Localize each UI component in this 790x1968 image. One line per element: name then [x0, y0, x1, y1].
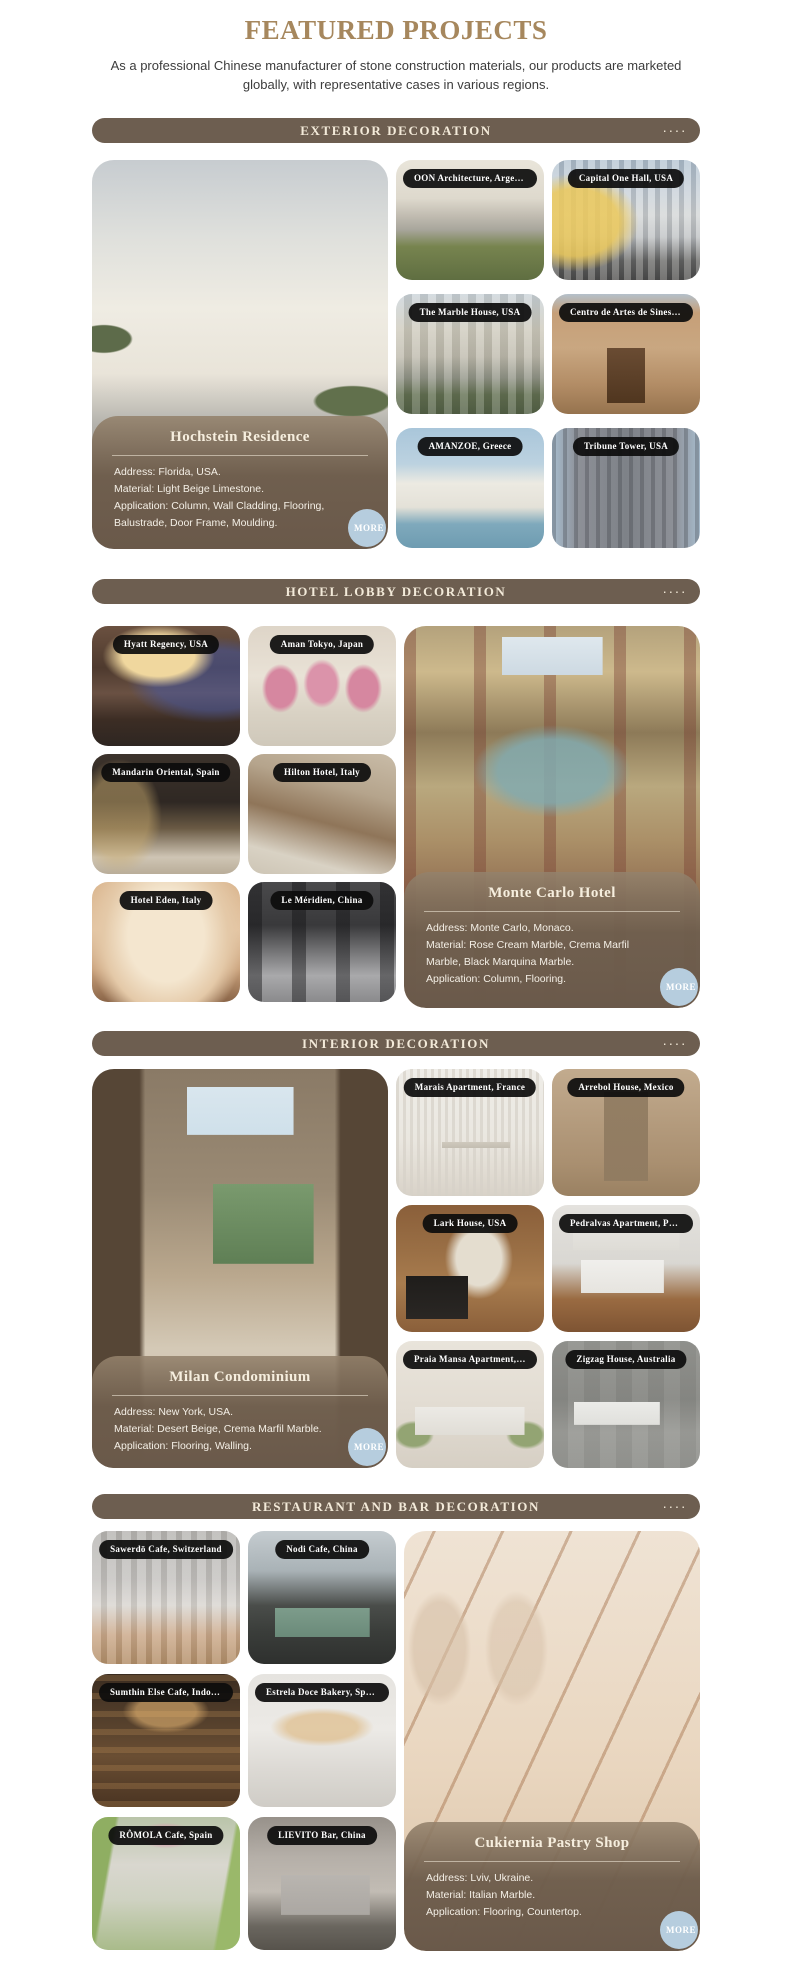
project-card[interactable]: LIEVITO Bar, China — [248, 1817, 396, 1950]
section-restaurant-bar: RESTAURANT AND BAR DECORATION ···· Sawer… — [92, 1494, 700, 1951]
divider — [424, 911, 680, 912]
project-label: Zigzag House, Australia — [565, 1350, 686, 1369]
section-body: Hyatt Regency, USA Aman Tokyo, Japan Man… — [92, 626, 700, 1008]
project-grid: Marais Apartment, France Arrebol House, … — [396, 1069, 700, 1468]
project-label: Hyatt Regency, USA — [113, 635, 219, 654]
section-title: HOTEL LOBBY DECORATION — [286, 584, 507, 600]
project-label: Pedralvas Apartment, Portugal — [559, 1214, 693, 1233]
project-card[interactable]: Hilton Hotel, Italy — [248, 754, 396, 874]
detail-address: Address: Monte Carlo, Monaco. — [426, 920, 686, 937]
project-card[interactable]: Praia Mansa Apartment, Brazil — [396, 1341, 544, 1468]
project-label: Praia Mansa Apartment, Brazil — [403, 1350, 537, 1369]
project-label: The Marble House, USA — [409, 303, 532, 322]
section-header-hotel: HOTEL LOBBY DECORATION ···· — [92, 579, 700, 604]
section-title: RESTAURANT AND BAR DECORATION — [252, 1499, 540, 1515]
project-card[interactable]: Sumthin Else Cafe, Indonesia — [92, 1674, 240, 1807]
featured-project-card[interactable]: Monte Carlo Hotel Address: Monte Carlo, … — [404, 626, 700, 1008]
detail-material-2: Marble, Black Marquina Marble. — [426, 954, 686, 971]
project-card[interactable]: Aman Tokyo, Japan — [248, 626, 396, 746]
project-label: Centro de Artes de Sines, Portugal — [559, 303, 693, 322]
project-card[interactable]: Sawerdō Cafe, Switzerland — [92, 1531, 240, 1664]
project-card[interactable]: Hyatt Regency, USA — [92, 626, 240, 746]
section-body: Milan Condominium Address: New York, USA… — [92, 1069, 700, 1468]
project-card[interactable]: OON Architecture, Argentina — [396, 160, 544, 280]
detail-material: Material: Rose Cream Marble, Crema Marfi… — [426, 937, 686, 954]
project-label: AMANZOE, Greece — [418, 437, 523, 456]
page-content: FEATURED PROJECTS As a professional Chin… — [92, 14, 700, 1951]
divider — [112, 1395, 368, 1396]
project-grid: Hyatt Regency, USA Aman Tokyo, Japan Man… — [92, 626, 396, 1002]
section-header-exterior: EXTERIOR DECORATION ···· — [92, 118, 700, 143]
project-card[interactable]: Capital One Hall, USA — [552, 160, 700, 280]
featured-info-panel: Hochstein Residence Address: Florida, US… — [92, 416, 388, 549]
featured-details: Address: Lviv, Ukraine. Material: Italia… — [404, 1870, 700, 1921]
project-grid: Sawerdō Cafe, Switzerland Nodi Cafe, Chi… — [92, 1531, 396, 1950]
project-card[interactable]: Estrela Doce Bakery, Spain — [248, 1674, 396, 1807]
project-label: Hotel Eden, Italy — [120, 891, 213, 910]
project-label: OON Architecture, Argentina — [403, 169, 537, 188]
project-card[interactable]: Nodi Cafe, China — [248, 1531, 396, 1664]
detail-application: Application: Column, Flooring. — [426, 971, 686, 988]
project-card[interactable]: Marais Apartment, France — [396, 1069, 544, 1196]
project-label: Mandarin Oriental, Spain — [101, 763, 230, 782]
project-label: Le Méridien, China — [270, 891, 373, 910]
section-exterior: EXTERIOR DECORATION ···· Hochstein Resid… — [92, 118, 700, 549]
project-label: Sumthin Else Cafe, Indonesia — [99, 1683, 233, 1702]
detail-application: Application: Column, Wall Cladding, Floo… — [114, 498, 374, 515]
section-body: Hochstein Residence Address: Florida, US… — [92, 160, 700, 549]
detail-address: Address: New York, USA. — [114, 1404, 374, 1421]
project-card[interactable]: Lark House, USA — [396, 1205, 544, 1332]
project-label: Capital One Hall, USA — [568, 169, 684, 188]
featured-info-panel: Milan Condominium Address: New York, USA… — [92, 1356, 388, 1468]
divider — [424, 1861, 680, 1862]
project-card[interactable]: RÔMOLA Cafe, Spain — [92, 1817, 240, 1950]
project-label: LIEVITO Bar, China — [267, 1826, 377, 1845]
detail-application: Application: Flooring, Countertop. — [426, 1904, 686, 1921]
project-card[interactable]: Mandarin Oriental, Spain — [92, 754, 240, 874]
ellipsis-icon[interactable]: ···· — [662, 1036, 687, 1050]
project-label: Nodi Cafe, China — [275, 1540, 369, 1559]
project-grid: OON Architecture, Argentina Capital One … — [396, 160, 700, 548]
project-label: Hilton Hotel, Italy — [273, 763, 371, 782]
featured-project-title: Hochstein Residence — [92, 416, 388, 446]
section-hotel-lobby: HOTEL LOBBY DECORATION ···· Hyatt Regenc… — [92, 579, 700, 1008]
featured-project-title: Monte Carlo Hotel — [404, 872, 700, 902]
detail-application: Application: Flooring, Walling. — [114, 1438, 374, 1455]
ellipsis-icon[interactable]: ···· — [662, 1499, 687, 1513]
project-label: Arrebol House, Mexico — [567, 1078, 684, 1097]
detail-material: Material: Light Beige Limestone. — [114, 481, 374, 498]
project-card[interactable]: Arrebol House, Mexico — [552, 1069, 700, 1196]
featured-details: Address: Monte Carlo, Monaco. Material: … — [404, 920, 700, 988]
featured-project-card[interactable]: Hochstein Residence Address: Florida, US… — [92, 160, 388, 549]
featured-details: Address: New York, USA. Material: Desert… — [92, 1404, 388, 1455]
ellipsis-icon[interactable]: ···· — [662, 584, 687, 598]
project-label: RÔMOLA Cafe, Spain — [108, 1826, 223, 1845]
project-card[interactable]: Pedralvas Apartment, Portugal — [552, 1205, 700, 1332]
project-card[interactable]: AMANZOE, Greece — [396, 428, 544, 548]
featured-info-panel: Cukiernia Pastry Shop Address: Lviv, Ukr… — [404, 1822, 700, 1951]
page-subtitle: As a professional Chinese manufacturer o… — [102, 56, 690, 94]
detail-application-2: Balustrade, Door Frame, Moulding. — [114, 515, 374, 532]
section-body: Sawerdō Cafe, Switzerland Nodi Cafe, Chi… — [92, 1531, 700, 1951]
detail-address: Address: Lviv, Ukraine. — [426, 1870, 686, 1887]
project-card[interactable]: The Marble House, USA — [396, 294, 544, 414]
divider — [112, 455, 368, 456]
section-title: EXTERIOR DECORATION — [300, 123, 492, 139]
detail-material: Material: Desert Beige, Crema Marfil Mar… — [114, 1421, 374, 1438]
ellipsis-icon[interactable]: ···· — [662, 123, 687, 137]
featured-details: Address: Florida, USA. Material: Light B… — [92, 464, 388, 532]
project-label: Estrela Doce Bakery, Spain — [255, 1683, 389, 1702]
project-card[interactable]: Le Méridien, China — [248, 882, 396, 1002]
project-card[interactable]: Tribune Tower, USA — [552, 428, 700, 548]
project-card[interactable]: Zigzag House, Australia — [552, 1341, 700, 1468]
detail-address: Address: Florida, USA. — [114, 464, 374, 481]
section-title: INTERIOR DECORATION — [302, 1036, 490, 1052]
featured-info-panel: Monte Carlo Hotel Address: Monte Carlo, … — [404, 872, 700, 1008]
page-title: FEATURED PROJECTS — [92, 14, 700, 46]
project-label: Marais Apartment, France — [404, 1078, 536, 1097]
project-label: Tribune Tower, USA — [573, 437, 679, 456]
project-card[interactable]: Centro de Artes de Sines, Portugal — [552, 294, 700, 414]
section-interior: INTERIOR DECORATION ···· Milan Condomini… — [92, 1031, 700, 1468]
project-label: Aman Tokyo, Japan — [270, 635, 374, 654]
section-header-restaurant: RESTAURANT AND BAR DECORATION ···· — [92, 1494, 700, 1519]
project-label: Lark House, USA — [423, 1214, 518, 1233]
featured-project-title: Milan Condominium — [92, 1356, 388, 1386]
featured-project-card[interactable]: Milan Condominium Address: New York, USA… — [92, 1069, 388, 1468]
project-card[interactable]: Hotel Eden, Italy — [92, 882, 240, 1002]
featured-project-title: Cukiernia Pastry Shop — [404, 1822, 700, 1852]
detail-material: Material: Italian Marble. — [426, 1887, 686, 1904]
section-header-interior: INTERIOR DECORATION ···· — [92, 1031, 700, 1056]
featured-project-card[interactable]: Cukiernia Pastry Shop Address: Lviv, Ukr… — [404, 1531, 700, 1951]
project-label: Sawerdō Cafe, Switzerland — [99, 1540, 233, 1559]
